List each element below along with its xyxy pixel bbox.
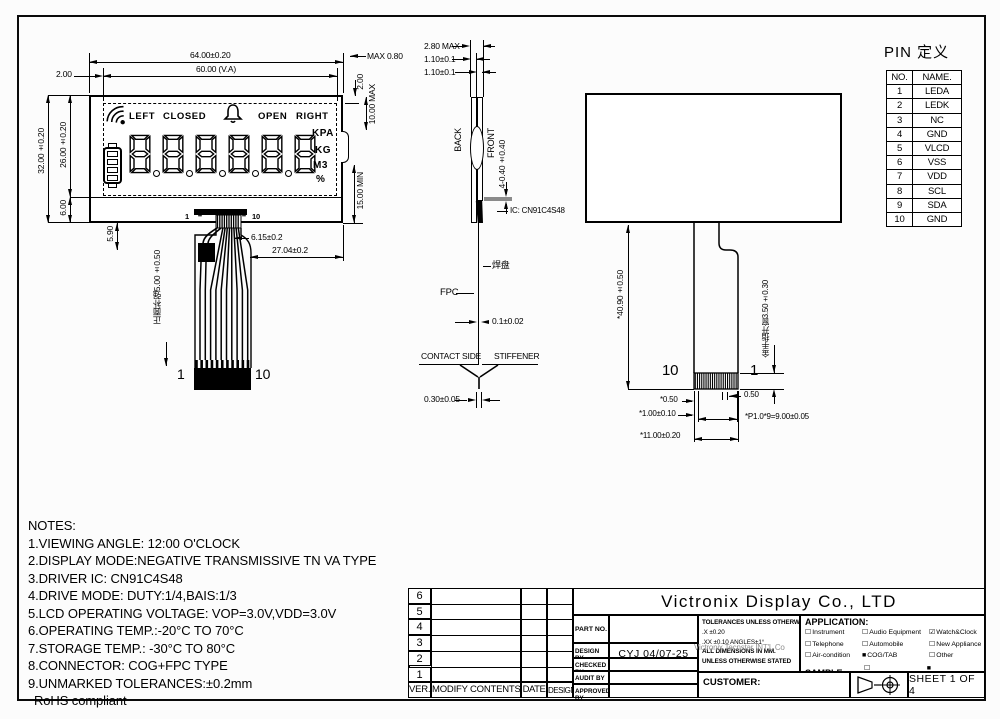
dim-polarizer: 4-0.40±0.40: [498, 140, 507, 188]
dim-edge-margin: *0.50: [660, 396, 678, 405]
application-cell: APPLICATION: ☐Instrument ☐Audio Equipmen…: [800, 615, 985, 672]
dim-conn-max: 10.00 MAX: [368, 84, 377, 124]
dim-va-width: 60.00 (V.A): [196, 65, 236, 74]
note-line: 7.STORAGE TEMP.: -30°C TO 80°C: [28, 640, 376, 658]
front-label: FRONT: [487, 128, 496, 158]
lens-mark: [470, 126, 484, 170]
stiffener-label: STIFFENER: [494, 352, 539, 361]
customer-cell: CUSTOMER:: [698, 672, 850, 698]
seg-label-closed: CLOSED: [163, 111, 206, 122]
pad-callout: 焊盘: [492, 261, 510, 271]
seven-seg-digit: [161, 131, 185, 177]
seven-seg-digit: [227, 131, 251, 177]
dim-fpc-right-offset: 27.04±0.2: [272, 246, 308, 255]
note-line: 5.LCD OPERATING VOLTAGE: VOP=3.0V,VDD=3.…: [28, 605, 376, 623]
dim-thickness-max: 2.80 MAX: [424, 42, 460, 51]
tolerance-line: UNLESS OTHERWISE STATED: [702, 657, 796, 667]
pin1-top-label: 1: [185, 213, 189, 221]
dim-va-height: 26.00±0.20: [59, 122, 68, 168]
dim-mid-pitch: 0.50: [744, 391, 759, 400]
company-title-cell: Victronix Display Co., LTD: [573, 588, 985, 615]
notes-title: NOTES:: [28, 517, 376, 535]
pin-table: NO.NAME. 1LEDA 2LEDK 3NC 4GND 5VLCD 6VSS…: [886, 70, 962, 227]
unit-pct: %: [316, 174, 325, 185]
fpc-line-side: [478, 223, 479, 365]
note-line: 9.UNMARKED TOLERANCES:±0.2mm: [28, 675, 376, 693]
polarizer-tab: [484, 197, 512, 201]
dim-bottom-height: 6.00: [59, 200, 68, 216]
third-angle-projection-icon: [851, 673, 907, 697]
dim-stiffener-note: 正面补强5.00±0.50: [153, 250, 162, 325]
decimal-point: [219, 170, 226, 177]
decimal-point: [285, 170, 292, 177]
dim-fpc-min: 15.00 MIN: [356, 172, 365, 209]
decimal-point: [153, 170, 160, 177]
pin-table-title: PIN 定义: [884, 45, 949, 62]
customer-label: CUSTOMER:: [699, 673, 849, 688]
dim-fpc-thickness: 0.1±0.02: [492, 317, 523, 326]
dim-gold-window: 金手指开窗3.50±0.30: [762, 280, 770, 357]
dim-tip-thickness: 0.30±0.05: [424, 395, 460, 404]
seg-label-left: LEFT: [129, 111, 155, 122]
tolerance-line: TOLERANCES UNLESS OTHERWISE STATED: [702, 618, 796, 628]
contact-side-label: CONTACT SIDE: [421, 352, 481, 361]
notes-block: NOTES: 1.VIEWING ANGLE: 12:00 O'CLOCK 2.…: [28, 517, 376, 710]
application-title: APPLICATION:: [805, 617, 980, 627]
pin1-bottom-label: 1: [177, 367, 185, 382]
ic-callout: IC: CN91C4S48: [510, 207, 565, 216]
date-header: DATE: [522, 683, 546, 697]
sheet-cell: SHEET 1 OF 4: [908, 672, 985, 698]
dim-total-height: 32.00±0.20: [37, 128, 46, 174]
watermark-text: Victronix Tecnstar INT'L Co: [694, 644, 785, 653]
modify-contents-header: MODIFY CONTENTS: [432, 683, 520, 697]
decimal-point: [252, 170, 259, 177]
dim-conn-width: 6.15±0.2: [251, 233, 282, 242]
dim-pitch-total: *P1.0*9=9.00±0.05: [745, 413, 809, 422]
dim-pin-width: *1.00±0.10: [639, 410, 676, 419]
lcd-glass-back: [585, 93, 842, 223]
fpc-tail-back: [580, 221, 790, 401]
dim-total-width: 64.00±0.20: [190, 51, 230, 60]
seg-label-right: RIGHT: [296, 111, 329, 122]
unit-kpa: KPA: [312, 128, 334, 139]
dim-left-margin: 2.00: [56, 70, 72, 79]
pin10-top-label: 10: [252, 213, 260, 221]
tolerance-line: .X ±0.20: [702, 628, 796, 638]
decimal-point: [186, 170, 193, 177]
pin-dots-left: ••: [198, 214, 202, 221]
glass-ledge-line: [89, 197, 343, 198]
seg-label-open: OPEN: [258, 111, 287, 122]
note-line: 6.OPERATING TEMP.:-20°C TO 70°C: [28, 622, 376, 640]
seven-seg-digit: [260, 131, 284, 177]
dim-glass2: 1.10±0.1: [424, 68, 455, 77]
audit-by-label: AUDIT BY: [574, 672, 608, 682]
note-rohs: RoHS compliant: [28, 692, 376, 710]
seven-seg-digit: [128, 131, 152, 177]
note-line: 1.VIEWING ANGLE: 12:00 O'CLOCK: [28, 535, 376, 553]
projection-cell: [850, 672, 908, 698]
unit-kg: KG: [315, 145, 331, 156]
fpc-callout: FPC: [440, 288, 458, 298]
part-no-label: PART NO.: [574, 616, 608, 633]
pin10-bottom-label: 10: [255, 367, 270, 382]
dim-tail-width: *11.00±0.20: [640, 432, 680, 441]
back-pin10-label: 10: [662, 363, 678, 380]
glass-fill-port: [341, 131, 349, 163]
note-line: 3.DRIVER IC: CN91C4S48: [28, 570, 376, 588]
back-label: BACK: [454, 128, 463, 152]
note-line: 2.DISPLAY MODE:NEGATIVE TRANSMISSIVE TN …: [28, 552, 376, 570]
note-line: 8.CONNECTOR: COG+FPC TYPE: [28, 657, 376, 675]
company-name: Victronix Display Co., LTD: [661, 592, 897, 612]
dim-fpc-length: *40.90±0.50: [616, 270, 625, 319]
seven-seg-digit: [194, 131, 218, 177]
back-pin1-label: 1: [750, 363, 758, 380]
pin-dots-right: ••: [242, 214, 246, 221]
seven-segment-digit-row: [128, 131, 317, 178]
bell-icon: [222, 102, 244, 125]
fpc-tip-side: [455, 360, 503, 392]
sheet-number: SHEET 1 OF 4: [909, 673, 984, 697]
dim-fpc-drop: 5.90: [106, 226, 115, 242]
note-line: 4.DRIVE MODE: DUTY:1/4,BAIS:1/3: [28, 587, 376, 605]
engineering-drawing-page: LEFT CLOSED OPEN RIGHT KPA KG M3 %: [0, 0, 1000, 719]
design-header: DESIGN: [548, 683, 572, 698]
unit-m3: M3: [313, 160, 328, 171]
dim-right-margin: 2.00: [356, 74, 365, 90]
ver-header: VER.: [409, 683, 430, 697]
dim-bump-max: MAX 0.80: [367, 52, 403, 61]
dim-glass1: 1.10±0.1: [424, 55, 455, 64]
approved-by-label: APPROVED BY: [574, 685, 608, 702]
